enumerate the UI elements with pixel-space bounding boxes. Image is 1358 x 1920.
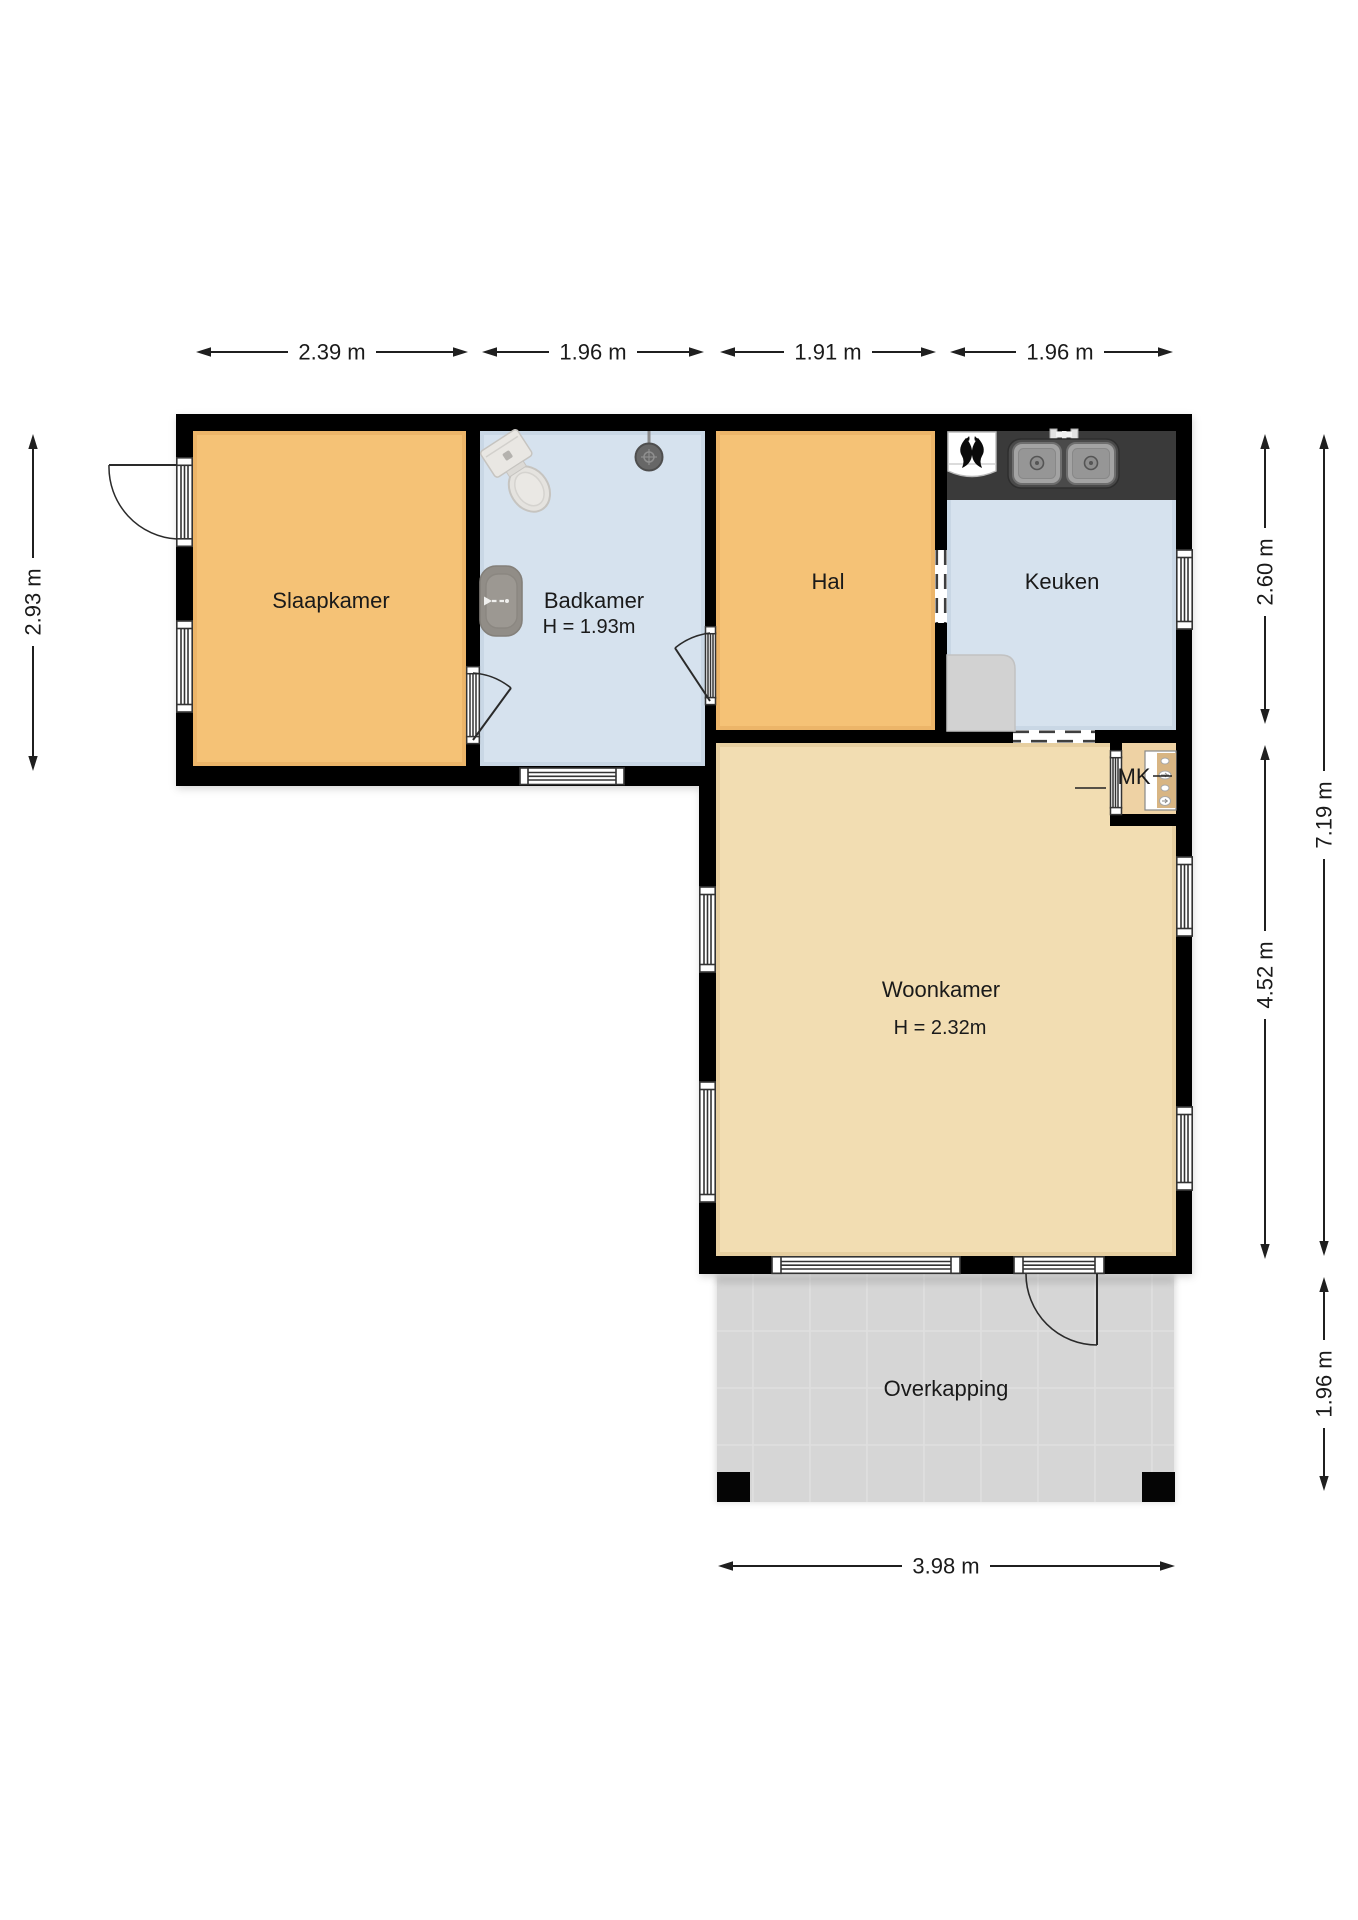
svg-text:1.96 m: 1.96 m <box>1026 340 1093 365</box>
svg-text:Hal: Hal <box>811 569 844 594</box>
svg-text:1.96 m: 1.96 m <box>559 340 626 365</box>
svg-text:3.98 m: 3.98 m <box>912 1554 979 1579</box>
svg-text:4.52 m: 4.52 m <box>1253 941 1278 1008</box>
svg-text:2.60 m: 2.60 m <box>1253 538 1278 605</box>
svg-text:MK: MK <box>1118 764 1151 789</box>
svg-text:2.93 m: 2.93 m <box>21 568 46 635</box>
svg-text:1.96 m: 1.96 m <box>1312 1350 1337 1417</box>
svg-text:H = 1.93m: H = 1.93m <box>543 616 636 638</box>
svg-text:7.19 m: 7.19 m <box>1312 781 1337 848</box>
svg-text:Badkamer: Badkamer <box>544 588 644 613</box>
svg-text:Overkapping: Overkapping <box>884 1376 1009 1401</box>
svg-text:Slaapkamer: Slaapkamer <box>272 588 389 613</box>
svg-text:Keuken: Keuken <box>1025 569 1100 594</box>
svg-text:2.39 m: 2.39 m <box>298 340 365 365</box>
svg-text:1.91 m: 1.91 m <box>794 340 861 365</box>
svg-text:Woonkamer: Woonkamer <box>882 977 1000 1002</box>
svg-text:H = 2.32m: H = 2.32m <box>894 1017 987 1039</box>
